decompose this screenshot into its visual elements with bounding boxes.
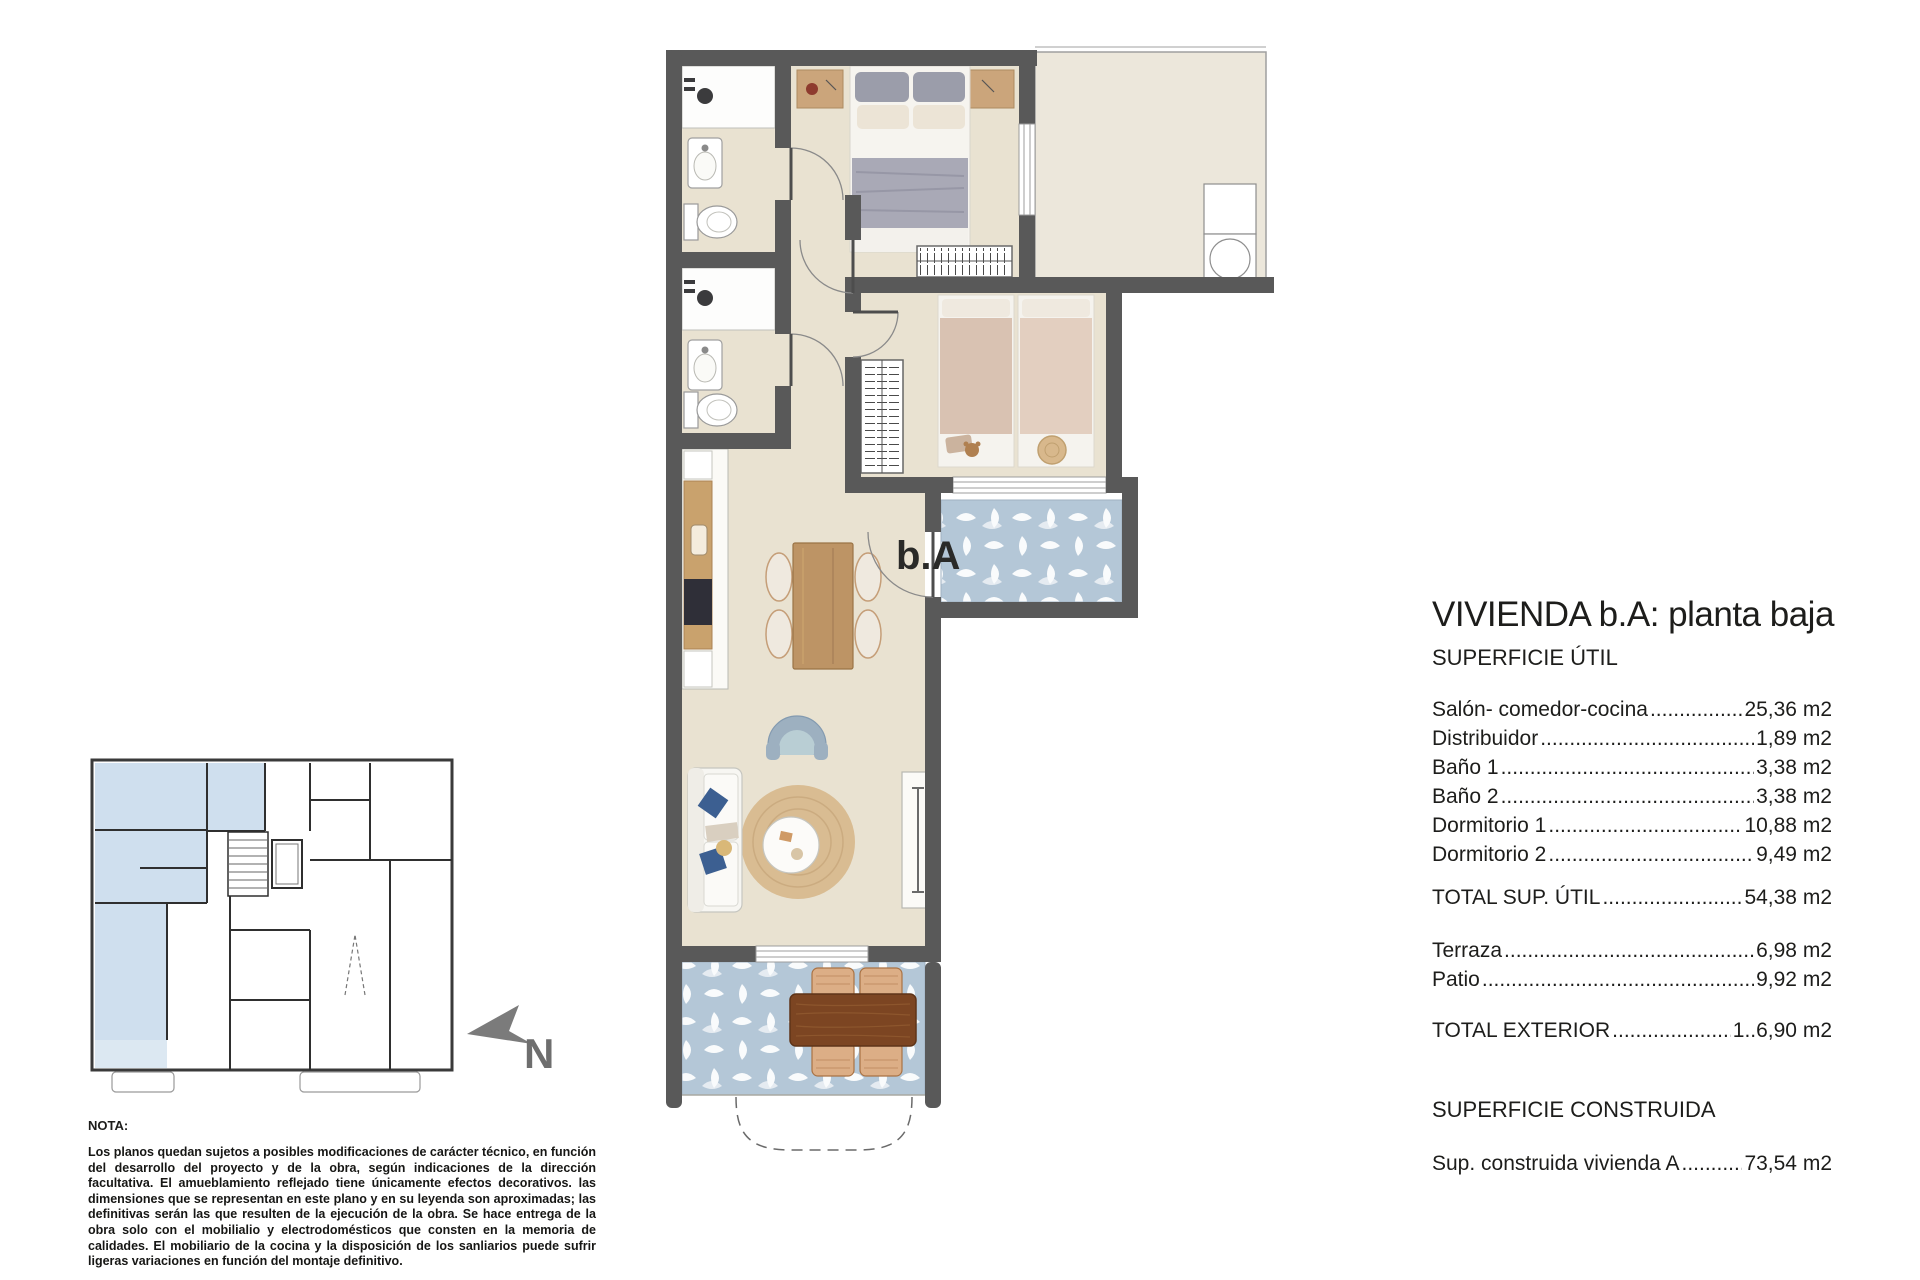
leader-dots	[1504, 936, 1754, 965]
sofa	[688, 768, 742, 912]
bedroom2-window	[953, 477, 1106, 493]
terrace-slider	[756, 946, 868, 962]
stair-core	[228, 832, 302, 896]
row-value: 1..6,90 m2	[1733, 1016, 1832, 1045]
row-value: 10,88 m2	[1744, 811, 1832, 840]
bedroom1-window	[1019, 124, 1035, 215]
row-label: Baño 2	[1432, 782, 1499, 811]
row-label: Dormitorio 1	[1432, 811, 1546, 840]
shower-drain	[697, 88, 713, 104]
closet	[917, 246, 1012, 277]
row-label: TOTAL SUP. ÚTIL	[1432, 883, 1600, 912]
double-bed	[850, 66, 970, 252]
row-label: Distribuidor	[1432, 724, 1538, 753]
main-floor-plan	[666, 47, 1274, 1150]
patio-tiles	[941, 500, 1122, 602]
leader-dots	[1548, 811, 1742, 840]
keyplan-porches	[112, 1072, 420, 1092]
total-exterior-row: TOTAL EXTERIOR1..6,90 m2	[1432, 1016, 1832, 1045]
kitchen	[682, 449, 728, 689]
unit-door-label: b.A	[896, 534, 960, 579]
leader-dots	[1501, 753, 1755, 782]
patio-top-right	[1035, 47, 1266, 284]
key-plan	[92, 760, 452, 1092]
table-row: Dormitorio 110,88 m2	[1432, 811, 1832, 840]
row-value: 6,98 m2	[1756, 936, 1832, 965]
row-value: 1,89 m2	[1756, 724, 1832, 753]
construida-row: Sup. construida vivienda A73,54 m2	[1432, 1149, 1832, 1178]
leader-dots	[1501, 782, 1755, 811]
nightstand-right	[970, 70, 1014, 108]
leader-dots	[1682, 1149, 1743, 1178]
single-bed-right	[1018, 295, 1094, 467]
surface-util-table: Salón- comedor-cocina25,36 m2 Distribuid…	[1432, 695, 1832, 1045]
row-label: Dormitorio 2	[1432, 840, 1546, 869]
table-row: Terraza6,98 m2	[1432, 936, 1832, 965]
north-arrow	[467, 1005, 532, 1044]
row-value: 9,92 m2	[1756, 965, 1832, 994]
shower-drain	[697, 290, 713, 306]
table-row: Patio9,92 m2	[1432, 965, 1832, 994]
table-row: Baño 13,38 m2	[1432, 753, 1832, 782]
coffee-table	[763, 817, 819, 873]
total-util-row: TOTAL SUP. ÚTIL54,38 m2	[1432, 883, 1832, 912]
area-summary-panel: VIVIENDA b.A: planta baja SUPERFICIE ÚTI…	[1432, 596, 1832, 1178]
row-label: Terraza	[1432, 936, 1502, 965]
row-value: 25,36 m2	[1744, 695, 1832, 724]
leader-dots	[1548, 840, 1754, 869]
row-label: Salón- comedor-cocina	[1432, 695, 1648, 724]
toilet	[684, 204, 737, 240]
surface-construida-heading: SUPERFICIE CONSTRUIDA	[1432, 1097, 1832, 1123]
dining-table	[793, 543, 853, 669]
armchair	[766, 716, 828, 777]
sink	[688, 340, 722, 390]
sink	[688, 138, 722, 188]
outdoor-table	[790, 994, 916, 1046]
rug	[741, 785, 855, 899]
surface-util-heading: SUPERFICIE ÚTIL	[1432, 645, 1832, 671]
leader-dots	[1602, 883, 1742, 912]
page-title: VIVIENDA b.A: planta baja	[1432, 596, 1832, 635]
wardrobe	[861, 360, 903, 473]
row-label: Patio	[1432, 965, 1480, 994]
row-value: 3,38 m2	[1756, 782, 1832, 811]
table-row: Dormitorio 29,49 m2	[1432, 840, 1832, 869]
row-value: 9,49 m2	[1756, 840, 1832, 869]
shower-tray	[682, 268, 775, 330]
row-value: 73,54 m2	[1744, 1149, 1832, 1178]
row-label: Baño 1	[1432, 753, 1499, 782]
nightstand-left	[797, 70, 843, 108]
leader-dots	[1540, 724, 1754, 753]
note-heading: NOTA:	[88, 1118, 596, 1133]
note-block: NOTA: Los planos quedan sujetos a posibl…	[88, 1118, 596, 1270]
table-row: Salón- comedor-cocina25,36 m2	[1432, 695, 1832, 724]
entry-path	[736, 1097, 912, 1150]
toilet	[684, 392, 737, 428]
leader-dots	[1482, 965, 1754, 994]
laundry-unit	[1204, 184, 1256, 284]
table-row: Baño 23,38 m2	[1432, 782, 1832, 811]
note-body: Los planos quedan sujetos a posibles mod…	[88, 1145, 596, 1270]
kitchen-sink	[691, 525, 707, 555]
leader-dots	[1650, 695, 1743, 724]
single-bed-left	[938, 295, 1014, 467]
round-deco	[1038, 436, 1066, 464]
row-value: 54,38 m2	[1744, 883, 1832, 912]
table-row: Distribuidor1,89 m2	[1432, 724, 1832, 753]
north-letter: N	[524, 1030, 554, 1078]
leader-dots	[1612, 1016, 1731, 1045]
shower-tray	[682, 66, 775, 128]
row-label: TOTAL EXTERIOR	[1432, 1016, 1610, 1045]
row-label: Sup. construida vivienda A	[1432, 1149, 1680, 1178]
cooktop	[684, 579, 712, 625]
row-value: 3,38 m2	[1756, 753, 1832, 782]
